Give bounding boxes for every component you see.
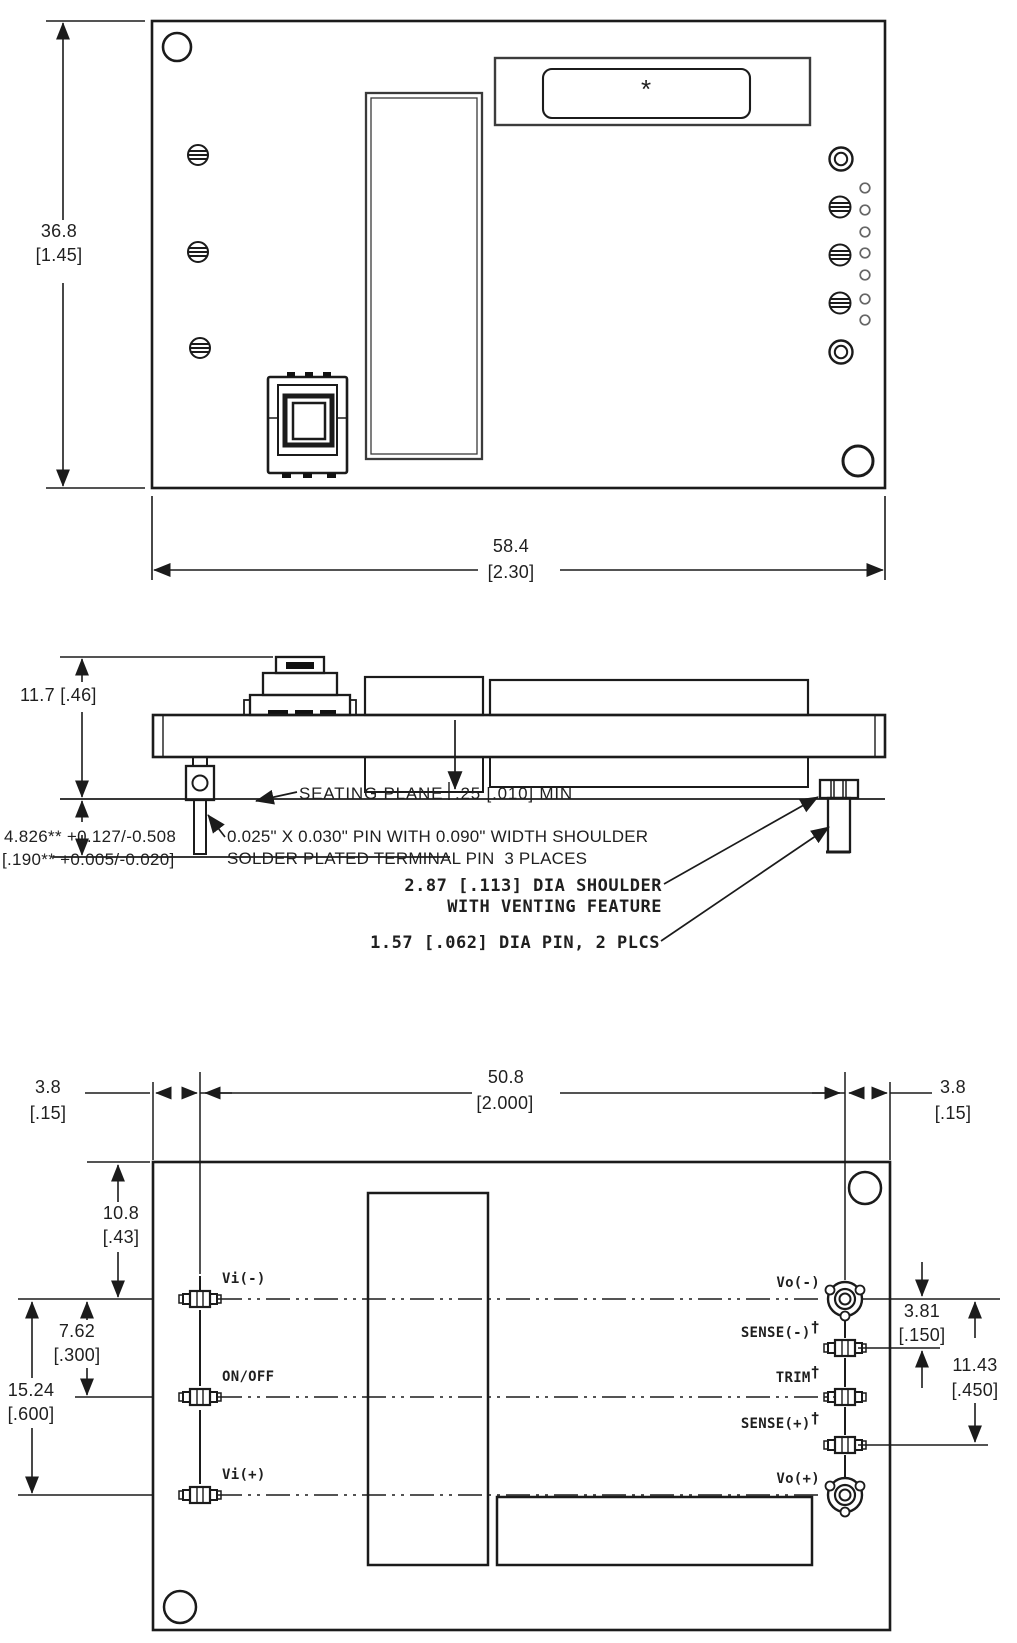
pin-label-text: Vi(+) xyxy=(222,1467,266,1483)
pin-note-line2: SOLDER PLATED TERMINAL PIN 3 PLACES xyxy=(227,850,587,868)
mounting-hole-top-left xyxy=(163,33,191,61)
dim-row-span-mm: 15.24 xyxy=(0,1381,62,1400)
pin-label-dagger: † xyxy=(811,1409,820,1427)
dim-left-offset-in: [.15] xyxy=(15,1104,81,1123)
dim-left-offset-mm: 3.8 xyxy=(18,1078,78,1097)
round-pin-vented-shoulder-side xyxy=(820,780,858,852)
pin-label-text: Vi(-) xyxy=(222,1271,266,1287)
clearance-note: .25 [.010] MIN xyxy=(455,785,573,803)
pin-label-dagger: † xyxy=(811,1363,820,1381)
switch-component-top-view xyxy=(268,372,347,478)
top-view-board-outline xyxy=(152,21,885,488)
mounting-hole-bottom-view-top-right xyxy=(849,1172,881,1204)
dim-row-pitch-in: [.300] xyxy=(42,1346,112,1365)
pin-label-trim: TRIM† xyxy=(700,1365,820,1386)
pin-label-text: SENSE(+) xyxy=(741,1416,811,1432)
dim-top-offset-mm: 10.8 xyxy=(93,1204,149,1223)
pin-label-vo-plus: Vo(+) xyxy=(700,1466,820,1487)
pin-label-vi-plus: Vi(+) xyxy=(222,1462,266,1483)
bottom-view-board-outline xyxy=(153,1162,890,1630)
screw-heads-right xyxy=(830,197,851,314)
shoulder-note-line2: WITH VENTING FEATURE xyxy=(380,899,662,917)
dim-row-pitch-mm: 7.62 xyxy=(48,1322,106,1341)
dim-sense-span-mm: 11.43 xyxy=(942,1356,1008,1375)
dim-right-offset-in: [.15] xyxy=(922,1104,984,1123)
dim-width-in: [2.30] xyxy=(476,563,546,582)
top-view-drawing xyxy=(46,21,885,580)
pin-label-text: TRIM xyxy=(776,1370,811,1386)
terminal-pins-right-column xyxy=(824,1340,866,1453)
outline-drawing-canvas: 36.8 [1.45] 58.4 [2.30] * 11.7 [.46] 4.8… xyxy=(0,0,1017,1643)
round-pin-note: 1.57 [.062] DIA PIN, 2 PLCS xyxy=(350,935,660,953)
pin-label-sense-plus: SENSE(+)† xyxy=(700,1411,820,1432)
via-dots-column xyxy=(860,183,870,325)
flat-terminal-pin-side xyxy=(186,757,214,854)
pin-label-text: SENSE(-) xyxy=(741,1325,811,1341)
dim-side-height: 11.7 [.46] xyxy=(20,686,97,705)
dim-pin-length-in: [.190** +0.005/-0.020] xyxy=(2,851,174,869)
pin-on-off xyxy=(179,1389,221,1405)
components-above-board-side xyxy=(365,677,808,715)
mounting-hole-bottom-right xyxy=(843,446,873,476)
switch-component-side-view xyxy=(244,657,356,715)
seating-plane-label: SEATING PLANE xyxy=(299,785,443,803)
dim-pin-span-in: [2.000] xyxy=(460,1094,550,1113)
transformer-bottom-view xyxy=(368,1193,488,1565)
board-side-view xyxy=(153,715,885,757)
mounting-hole-bottom-view-bottom-left xyxy=(164,1591,196,1623)
pin-label-vo-minus: Vo(-) xyxy=(700,1270,820,1291)
pin-label-text: ON/OFF xyxy=(222,1369,274,1385)
label-marking-asterisk: * xyxy=(626,76,666,103)
drawing-linework xyxy=(0,0,1017,1643)
pin-label-on-off: ON/OFF xyxy=(222,1364,274,1385)
pin-label-text: Vo(-) xyxy=(776,1275,820,1291)
shoulder-note-line1: 2.87 [.113] DIA SHOULDER xyxy=(380,878,662,896)
pin-trim xyxy=(824,1389,866,1405)
pin-vo-minus xyxy=(826,1282,865,1321)
pin-vo-plus xyxy=(826,1478,865,1517)
pin-label-vi-minus: Vi(-) xyxy=(222,1266,266,1287)
pin-label-sense-minus: SENSE(-)† xyxy=(700,1320,820,1341)
dim-height-in: [1.45] xyxy=(26,246,92,265)
pin-vi-minus xyxy=(179,1291,221,1307)
dim-top-offset-in: [.43] xyxy=(93,1228,149,1247)
transformer-top-view xyxy=(366,93,482,459)
screw-heads-left xyxy=(188,145,210,358)
label-area-bottom-view xyxy=(497,1497,812,1565)
dim-pin-length-mm: 4.826** +0.127/-0.508 xyxy=(4,828,176,846)
pin-label-dagger: † xyxy=(811,1318,820,1336)
dim-sense-offset-in: [.150] xyxy=(888,1326,956,1345)
pin-label-text: Vo(+) xyxy=(776,1471,820,1487)
pin-vi-plus xyxy=(179,1487,221,1503)
dim-sense-offsets-linework xyxy=(922,1262,975,1442)
bottom-view-drawing xyxy=(18,1072,1000,1630)
dim-right-offset-mm: 3.8 xyxy=(926,1078,980,1097)
dim-row-span-in: [.600] xyxy=(0,1405,62,1424)
dim-width-mm: 58.4 xyxy=(480,537,542,556)
board-end-caps xyxy=(163,715,875,757)
dim-sense-span-in: [.450] xyxy=(942,1381,1008,1400)
dim-height-mm: 36.8 xyxy=(26,222,92,241)
pin-note-line1: 0.025" X 0.030" PIN WITH 0.090" WIDTH SH… xyxy=(227,828,648,846)
dim-pin-span-mm: 50.8 xyxy=(475,1068,537,1087)
dim-sense-offset-mm: 3.81 xyxy=(893,1302,951,1321)
